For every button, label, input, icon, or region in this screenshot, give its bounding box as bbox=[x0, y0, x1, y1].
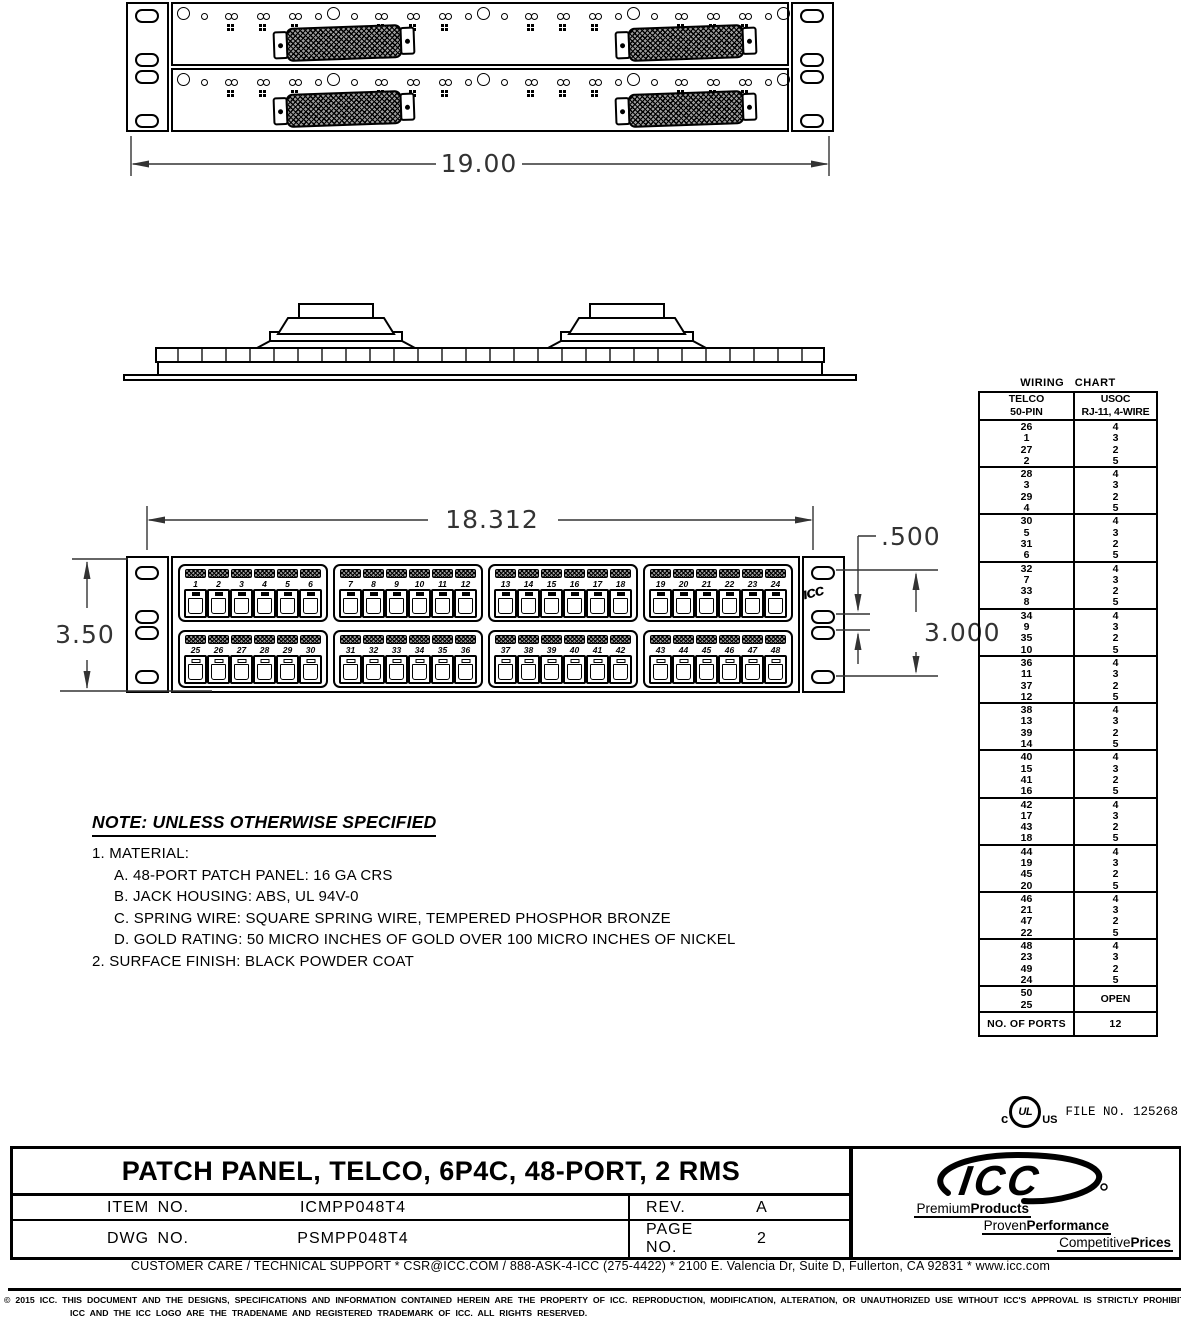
mount-hole bbox=[135, 114, 159, 128]
rj11-jack bbox=[718, 589, 741, 618]
wiring-chart-table: TELCO 50-PIN USOC RJ-11, 4-WIRE 26127243… bbox=[978, 391, 1158, 1037]
wire-slot-block bbox=[518, 569, 539, 578]
telco-pin-cell: 44194520 bbox=[980, 846, 1073, 891]
wire-slot-block bbox=[254, 569, 275, 578]
rj11-jack bbox=[299, 589, 322, 618]
mount-hole bbox=[135, 610, 159, 624]
rj11-jack bbox=[586, 589, 609, 618]
col-header-usoc-sub: RJ-11, 4-WIRE bbox=[1075, 406, 1156, 419]
usoc-pin-cell: 4325 bbox=[1073, 704, 1156, 749]
rj11-jack bbox=[672, 655, 695, 684]
rj11-jack bbox=[276, 655, 299, 684]
ul-certification-mark: c UL US FILE NO. 125268 bbox=[1001, 1096, 1178, 1128]
rj11-jack bbox=[609, 655, 632, 684]
wire-slot-block bbox=[495, 569, 516, 578]
note-line: B. JACK HOUSING: ABS, UL 94V-0 bbox=[92, 886, 772, 908]
page-no-label: PAGE NO. bbox=[646, 1221, 732, 1257]
wiring-group: 381339144325 bbox=[980, 704, 1156, 751]
port-number: 10 bbox=[408, 579, 431, 589]
port-number: 33 bbox=[385, 645, 408, 655]
rj11-jack bbox=[385, 589, 408, 618]
rj11-jack bbox=[741, 655, 764, 684]
brand-taglines: PremiumProducts ProvenPerformance Compet… bbox=[853, 1201, 1173, 1252]
wire-slot-block bbox=[432, 635, 453, 644]
telco-50pin-connector bbox=[614, 24, 757, 63]
rack-ear-right-front bbox=[802, 556, 845, 693]
rear-view-drawing bbox=[126, 2, 834, 132]
rj11-jack bbox=[764, 655, 787, 684]
panel-body-profile bbox=[158, 362, 822, 375]
rj11-jack bbox=[207, 655, 230, 684]
port-number: 30 bbox=[299, 645, 322, 655]
screw-icon bbox=[405, 104, 410, 109]
wire-slot-block bbox=[231, 569, 252, 578]
wire-slot-block bbox=[696, 569, 717, 578]
port-group: 434445464748 bbox=[643, 630, 793, 688]
port-group: 123456 bbox=[178, 564, 328, 622]
port-number: 43 bbox=[649, 645, 672, 655]
usoc-pin-cell: 4325 bbox=[1073, 846, 1156, 891]
wire-slot-block bbox=[363, 569, 384, 578]
wiring-group: 361137124325 bbox=[980, 657, 1156, 704]
rj11-jack bbox=[408, 589, 431, 618]
item-no-label: ITEM NO. bbox=[73, 1199, 223, 1217]
port-number: 13 bbox=[494, 579, 517, 589]
copyright-line-1: © 2015 ICC. THIS DOCUMENT AND THE DESIGN… bbox=[4, 1295, 1179, 1305]
rj11-jack bbox=[718, 655, 741, 684]
rj11-jack bbox=[431, 655, 454, 684]
note-line: 2. SURFACE FINISH: BLACK POWDER COAT bbox=[92, 951, 772, 973]
port-number: 12 bbox=[454, 579, 477, 589]
top-view-drawing bbox=[120, 296, 860, 388]
port-number: 24 bbox=[764, 579, 787, 589]
note-line: D. GOLD RATING: 50 MICRO INCHES OF GOLD … bbox=[92, 929, 772, 951]
wire-slot-block bbox=[765, 569, 786, 578]
telco-pin-cell: 46214722 bbox=[980, 893, 1073, 938]
wiring-group: 441945204325 bbox=[980, 846, 1156, 893]
port-number: 6 bbox=[299, 579, 322, 589]
rj11-jack bbox=[517, 589, 540, 618]
title-block: PATCH PANEL, TELCO, 6P4C, 48-PORT, 2 RMS… bbox=[10, 1146, 852, 1260]
usoc-pin-cell: 4325 bbox=[1073, 610, 1156, 655]
rj11-jack bbox=[695, 655, 718, 684]
port-number: 26 bbox=[207, 645, 230, 655]
dim-ear-hole-offset: .500 bbox=[881, 522, 941, 551]
wire-slot-strip bbox=[495, 635, 631, 644]
port-number: 27 bbox=[230, 645, 253, 655]
port-number: 44 bbox=[672, 645, 695, 655]
rj11-jack bbox=[408, 655, 431, 684]
wire-slot-block bbox=[610, 635, 631, 644]
ports-row-bottom: 2526272829303132333435363738394041424344… bbox=[173, 630, 798, 688]
telco-pin-cell: 261272 bbox=[980, 421, 1073, 466]
mount-hole bbox=[135, 626, 159, 640]
mount-hole bbox=[811, 610, 835, 624]
port-group: 252627282930 bbox=[178, 630, 328, 688]
wire-slot-strip bbox=[650, 635, 786, 644]
rj11-jack bbox=[253, 589, 276, 618]
note-line: C. SPRING WIRE: SQUARE SPRING WIRE, TEMP… bbox=[92, 908, 772, 930]
port-number: 32 bbox=[362, 645, 385, 655]
wiring-group: 421743184325 bbox=[980, 799, 1156, 846]
col-header-telco: TELCO bbox=[980, 393, 1073, 406]
port-number: 5 bbox=[276, 579, 299, 589]
notes-section: NOTE: UNLESS OTHERWISE SPECIFIED 1. MATE… bbox=[92, 812, 772, 972]
usoc-pin-cell: 4325 bbox=[1073, 515, 1156, 560]
rear-row-1 bbox=[171, 2, 789, 66]
rj11-jack bbox=[540, 589, 563, 618]
usoc-pin-cell: 4325 bbox=[1073, 751, 1156, 796]
wire-slot-strip bbox=[185, 635, 321, 644]
port-number: 38 bbox=[517, 645, 540, 655]
icc-logo: ICC bbox=[853, 1149, 1179, 1209]
wire-slot-block bbox=[386, 635, 407, 644]
mount-hole bbox=[135, 9, 159, 23]
port-number: 41 bbox=[586, 645, 609, 655]
rj11-jack bbox=[362, 655, 385, 684]
wire-slot-block bbox=[610, 569, 631, 578]
wire-slot-block bbox=[742, 569, 763, 578]
rack-ear-left-front bbox=[126, 556, 169, 693]
usoc-pin-cell: 4325 bbox=[1073, 799, 1156, 844]
wire-slot-strip bbox=[185, 569, 321, 578]
rj11-jack bbox=[764, 589, 787, 618]
telco-pin-cell: 48234924 bbox=[980, 940, 1073, 985]
rj11-jack bbox=[741, 589, 764, 618]
mount-hole bbox=[135, 70, 159, 84]
front-panel-body: 123456789101112131415161718192021222324 … bbox=[171, 556, 800, 693]
rj11-jack bbox=[431, 589, 454, 618]
note-line: A. 48-PORT PATCH PANEL: 16 GA CRS bbox=[92, 865, 772, 887]
rj11-jack bbox=[454, 655, 477, 684]
port-number: 40 bbox=[563, 645, 586, 655]
wire-slot-block bbox=[455, 569, 476, 578]
telco-connector-profile bbox=[548, 304, 706, 348]
wire-slot-block bbox=[254, 635, 275, 644]
note-line: 1. MATERIAL: bbox=[92, 843, 772, 865]
port-number: 22 bbox=[718, 579, 741, 589]
wire-slot-block bbox=[673, 569, 694, 578]
wiring-group: 3273384325 bbox=[980, 563, 1156, 610]
rj11-jack bbox=[540, 655, 563, 684]
wiring-chart-footer: NO. OF PORTS 12 bbox=[980, 1013, 1156, 1035]
footer-divider bbox=[8, 1288, 1181, 1291]
wire-slot-strip bbox=[340, 569, 476, 578]
wire-slot-block bbox=[650, 635, 671, 644]
port-number: 36 bbox=[454, 645, 477, 655]
port-number: 45 bbox=[695, 645, 718, 655]
rj11-jack bbox=[563, 589, 586, 618]
rj11-jack bbox=[339, 655, 362, 684]
wire-slot-block bbox=[185, 569, 206, 578]
port-number: 18 bbox=[609, 579, 632, 589]
wire-slot-block bbox=[409, 635, 430, 644]
telco-pin-cell: 305316 bbox=[980, 515, 1073, 560]
icc-brand-box: ICC PremiumProducts ProvenPerformance Co… bbox=[850, 1146, 1181, 1260]
port-number: 14 bbox=[517, 579, 540, 589]
wire-slot-block bbox=[541, 569, 562, 578]
mount-hole bbox=[800, 70, 824, 84]
wiring-group: 462147224325 bbox=[980, 893, 1156, 940]
port-number: 46 bbox=[718, 645, 741, 655]
dwg-no-value: PSMPP048T4 bbox=[223, 1230, 483, 1248]
rj11-jack bbox=[184, 589, 207, 618]
wire-slot-block bbox=[541, 635, 562, 644]
wiring-group: 401541164325 bbox=[980, 751, 1156, 798]
mount-hole bbox=[135, 566, 159, 580]
wiring-group: 34935104325 bbox=[980, 610, 1156, 657]
rear-panel-body bbox=[171, 2, 789, 132]
wiring-chart-header: TELCO 50-PIN USOC RJ-11, 4-WIRE bbox=[980, 393, 1156, 421]
port-number: 2 bbox=[207, 579, 230, 589]
port-number: 35 bbox=[431, 645, 454, 655]
telco-pin-cell: 38133914 bbox=[980, 704, 1073, 749]
mount-hole bbox=[811, 566, 835, 580]
rj11-jack bbox=[517, 655, 540, 684]
wire-slot-block bbox=[208, 569, 229, 578]
port-number: 48 bbox=[764, 645, 787, 655]
wiring-chart-title: WIRING CHART bbox=[978, 377, 1158, 389]
rj11-jack bbox=[230, 589, 253, 618]
port-number: 15 bbox=[540, 579, 563, 589]
port-group: 373839404142 bbox=[488, 630, 638, 688]
port-number: 11 bbox=[431, 579, 454, 589]
wire-slot-block bbox=[696, 635, 717, 644]
port-number: 4 bbox=[253, 579, 276, 589]
page-no-value: 2 bbox=[732, 1230, 792, 1248]
port-number: 21 bbox=[695, 579, 718, 589]
wire-slot-block bbox=[587, 569, 608, 578]
rj11-jack bbox=[184, 655, 207, 684]
connector-flange bbox=[741, 27, 757, 56]
rj11-jack bbox=[385, 655, 408, 684]
wiring-group: 2612724325 bbox=[980, 421, 1156, 468]
port-number: 3 bbox=[230, 579, 253, 589]
wire-slot-block bbox=[495, 635, 516, 644]
port-number: 28 bbox=[253, 645, 276, 655]
port-number: 19 bbox=[649, 579, 672, 589]
wire-slot-block bbox=[409, 569, 430, 578]
ports-count-value: 12 bbox=[1073, 1013, 1156, 1035]
connector-pins bbox=[627, 24, 744, 62]
wire-slot-block bbox=[432, 569, 453, 578]
wiring-group: 3053164325 bbox=[980, 515, 1156, 562]
rj11-jack bbox=[649, 655, 672, 684]
wire-slot-block bbox=[719, 569, 740, 578]
copyright-line-2: ICC AND THE ICC LOGO ARE THE TRADENAME A… bbox=[70, 1308, 587, 1318]
wire-slot-strip bbox=[495, 569, 631, 578]
ul-logo-icon: UL bbox=[1009, 1096, 1041, 1128]
port-number: 1 bbox=[184, 579, 207, 589]
wire-slot-block bbox=[185, 635, 206, 644]
rj11-jack bbox=[494, 589, 517, 618]
telco-pin-cell: 3493510 bbox=[980, 610, 1073, 655]
usoc-pin-cell: 4325 bbox=[1073, 893, 1156, 938]
port-number: 37 bbox=[494, 645, 517, 655]
screw-icon bbox=[620, 43, 625, 48]
port-number: 42 bbox=[609, 645, 632, 655]
connector-flange bbox=[399, 93, 415, 122]
wire-slot-block bbox=[300, 569, 321, 578]
port-group: 313233343536 bbox=[333, 630, 483, 688]
screw-icon bbox=[405, 38, 410, 43]
telco-pin-cell: 40154116 bbox=[980, 751, 1073, 796]
wire-slot-block bbox=[363, 635, 384, 644]
screw-icon bbox=[278, 43, 283, 48]
port-number: 16 bbox=[563, 579, 586, 589]
icc-logo-swoosh: ICC bbox=[906, 1149, 1126, 1209]
wiring-group: 2832944325 bbox=[980, 468, 1156, 515]
usoc-pin-cell: 4325 bbox=[1073, 421, 1156, 466]
connector-pins bbox=[627, 90, 744, 128]
wire-slot-block bbox=[673, 635, 694, 644]
wire-slot-block bbox=[719, 635, 740, 644]
wiring-open-group: 50 25 OPEN bbox=[980, 987, 1156, 1013]
wire-slot-block bbox=[742, 635, 763, 644]
port-group: 131415161718 bbox=[488, 564, 638, 622]
front-view-drawing: 123456789101112131415161718192021222324 … bbox=[126, 556, 834, 693]
dwg-no-label: DWG NO. bbox=[73, 1230, 223, 1248]
rj11-jack bbox=[563, 655, 586, 684]
port-group: 789101112 bbox=[333, 564, 483, 622]
rj11-jack bbox=[230, 655, 253, 684]
mount-hole bbox=[135, 53, 159, 67]
svg-text:ICC: ICC bbox=[956, 1157, 1044, 1204]
wire-slot-block bbox=[650, 569, 671, 578]
connector-pins bbox=[285, 90, 402, 128]
drawing-title: PATCH PANEL, TELCO, 6P4C, 48-PORT, 2 RMS bbox=[13, 1149, 849, 1196]
port-number: 31 bbox=[339, 645, 362, 655]
usoc-pin-cell: 4325 bbox=[1073, 468, 1156, 513]
telco-50pin-connector bbox=[272, 90, 415, 129]
item-no-value: ICMPP048T4 bbox=[223, 1199, 483, 1217]
rj11-jack bbox=[276, 589, 299, 618]
wire-slot-block bbox=[765, 635, 786, 644]
port-number: 39 bbox=[540, 645, 563, 655]
telco-pin-cell: 327338 bbox=[980, 563, 1073, 608]
dim-overall-width: 19.00 bbox=[441, 149, 518, 178]
port-number: 7 bbox=[339, 579, 362, 589]
customer-support-line: CUSTOMER CARE / TECHNICAL SUPPORT * CSR@… bbox=[0, 1259, 1181, 1273]
rack-ear-left-rear bbox=[126, 2, 169, 132]
rj11-jack bbox=[494, 655, 517, 684]
wire-slot-block bbox=[564, 569, 585, 578]
telco-50pin-connector bbox=[614, 90, 757, 129]
usoc-pin-cell: 4325 bbox=[1073, 940, 1156, 985]
telco-50pin-connector bbox=[272, 24, 415, 63]
wire-slot-block bbox=[231, 635, 252, 644]
rj11-jack bbox=[695, 589, 718, 618]
rj11-jack bbox=[207, 589, 230, 618]
wire-slot-strip bbox=[340, 635, 476, 644]
screw-icon bbox=[620, 109, 625, 114]
rack-ear-right-rear bbox=[791, 2, 834, 132]
col-header-usoc: USOC bbox=[1075, 393, 1156, 406]
rj11-jack bbox=[672, 589, 695, 618]
rear-row-2 bbox=[171, 68, 789, 132]
rj11-jack bbox=[649, 589, 672, 618]
usoc-pin-cell: 4325 bbox=[1073, 563, 1156, 608]
wire-slot-block bbox=[455, 635, 476, 644]
port-number: 17 bbox=[586, 579, 609, 589]
port-number: 34 bbox=[408, 645, 431, 655]
wiring-chart-body: 2612724325283294432530531643253273384325… bbox=[980, 421, 1156, 987]
mount-hole bbox=[811, 626, 835, 640]
open-value: OPEN bbox=[1073, 987, 1156, 1011]
port-number: 20 bbox=[672, 579, 695, 589]
rev-value: A bbox=[732, 1199, 792, 1217]
rj11-jack bbox=[299, 655, 322, 684]
telco-pin-cell: 42174318 bbox=[980, 799, 1073, 844]
rj11-jack bbox=[454, 589, 477, 618]
wire-slot-block bbox=[386, 569, 407, 578]
mount-hole bbox=[800, 114, 824, 128]
wire-slot-block bbox=[518, 635, 539, 644]
port-number: 8 bbox=[362, 579, 385, 589]
wiring-chart: WIRING CHART TELCO 50-PIN USOC RJ-11, 4-… bbox=[978, 377, 1158, 1037]
connector-flange bbox=[399, 27, 415, 56]
mount-hole bbox=[811, 670, 835, 684]
port-number: 9 bbox=[385, 579, 408, 589]
ports-row-top: 123456789101112131415161718192021222324 bbox=[173, 564, 798, 622]
dim-panel-height: 3.50 bbox=[55, 620, 115, 649]
port-number: 47 bbox=[741, 645, 764, 655]
ports-count-label: NO. OF PORTS bbox=[980, 1013, 1073, 1035]
screw-icon bbox=[278, 109, 283, 114]
port-number: 23 bbox=[741, 579, 764, 589]
port-group: 192021222324 bbox=[643, 564, 793, 622]
rj11-jack bbox=[362, 589, 385, 618]
screw-icon bbox=[747, 38, 752, 43]
wire-slot-block bbox=[340, 635, 361, 644]
mount-hole bbox=[800, 53, 824, 67]
telco-pin-cell: 36113712 bbox=[980, 657, 1073, 702]
rj11-jack bbox=[609, 589, 632, 618]
port-number: 29 bbox=[276, 645, 299, 655]
port-number: 25 bbox=[184, 645, 207, 655]
rev-label: REV. bbox=[646, 1199, 732, 1217]
telco-connector-profile bbox=[257, 304, 415, 348]
wire-slot-strip bbox=[650, 569, 786, 578]
wire-slot-block bbox=[587, 635, 608, 644]
ul-file-number: FILE NO. 125268 bbox=[1066, 1105, 1179, 1119]
wire-slot-block bbox=[208, 635, 229, 644]
mount-hole bbox=[800, 9, 824, 23]
wire-slot-block bbox=[277, 635, 298, 644]
col-header-telco-sub: 50-PIN bbox=[980, 406, 1073, 419]
rj11-jack bbox=[339, 589, 362, 618]
mount-hole bbox=[135, 670, 159, 684]
wire-slot-block bbox=[564, 635, 585, 644]
wire-slot-block bbox=[300, 635, 321, 644]
connector-flange bbox=[741, 93, 757, 122]
connector-pins bbox=[285, 24, 402, 62]
telco-pin-cell: 283294 bbox=[980, 468, 1073, 513]
notes-heading: NOTE: UNLESS OTHERWISE SPECIFIED bbox=[92, 812, 436, 837]
ul-c-label: c bbox=[1001, 1111, 1008, 1126]
dim-jack-span: 18.312 bbox=[445, 505, 538, 534]
usoc-pin-cell: 4325 bbox=[1073, 657, 1156, 702]
wiring-group: 482349244325 bbox=[980, 940, 1156, 987]
wire-slot-block bbox=[340, 569, 361, 578]
ul-us-label: US bbox=[1042, 1114, 1057, 1126]
screw-icon bbox=[747, 104, 752, 109]
wire-slot-block bbox=[277, 569, 298, 578]
rj11-jack bbox=[253, 655, 276, 684]
rj11-jack bbox=[586, 655, 609, 684]
